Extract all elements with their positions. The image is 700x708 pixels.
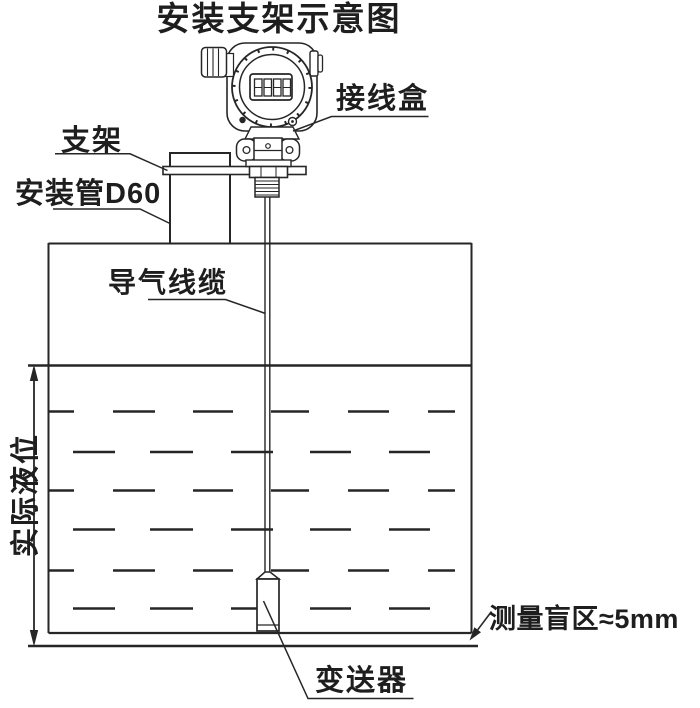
air-guide-cable: [265, 197, 270, 572]
side-plug: [310, 51, 323, 76]
transmitter-head: [202, 43, 323, 162]
installation-schematic: 安装支架示意图 接线盒 支架 安装管D60 导气线缆 实际液位 测量盲区≈5mm…: [0, 0, 700, 708]
leader-mounting-pipe: [53, 209, 170, 224]
screw-dot-icon: [239, 117, 245, 123]
threaded-stub: [255, 178, 279, 198]
label-transmitter: 变送器: [315, 665, 408, 697]
liquid-dashes: [49, 412, 455, 609]
label-junction-box: 接线盒: [336, 83, 429, 115]
label-blind-zone: 测量盲区≈5mm: [489, 604, 679, 634]
label-air-cable: 导气线缆: [108, 267, 228, 298]
label-bracket: 支架: [61, 125, 123, 157]
page-title: 安装支架示意图: [150, 1, 408, 38]
label-mounting-pipe: 安装管D60: [15, 178, 161, 210]
label-actual-level: 实际液位: [10, 428, 42, 562]
tank-outline: [28, 243, 478, 646]
hex-nut: [246, 160, 291, 178]
leader-air-cable: [148, 300, 266, 314]
lcd-display-icon: [250, 74, 292, 100]
probe-transmitter: [257, 572, 279, 631]
